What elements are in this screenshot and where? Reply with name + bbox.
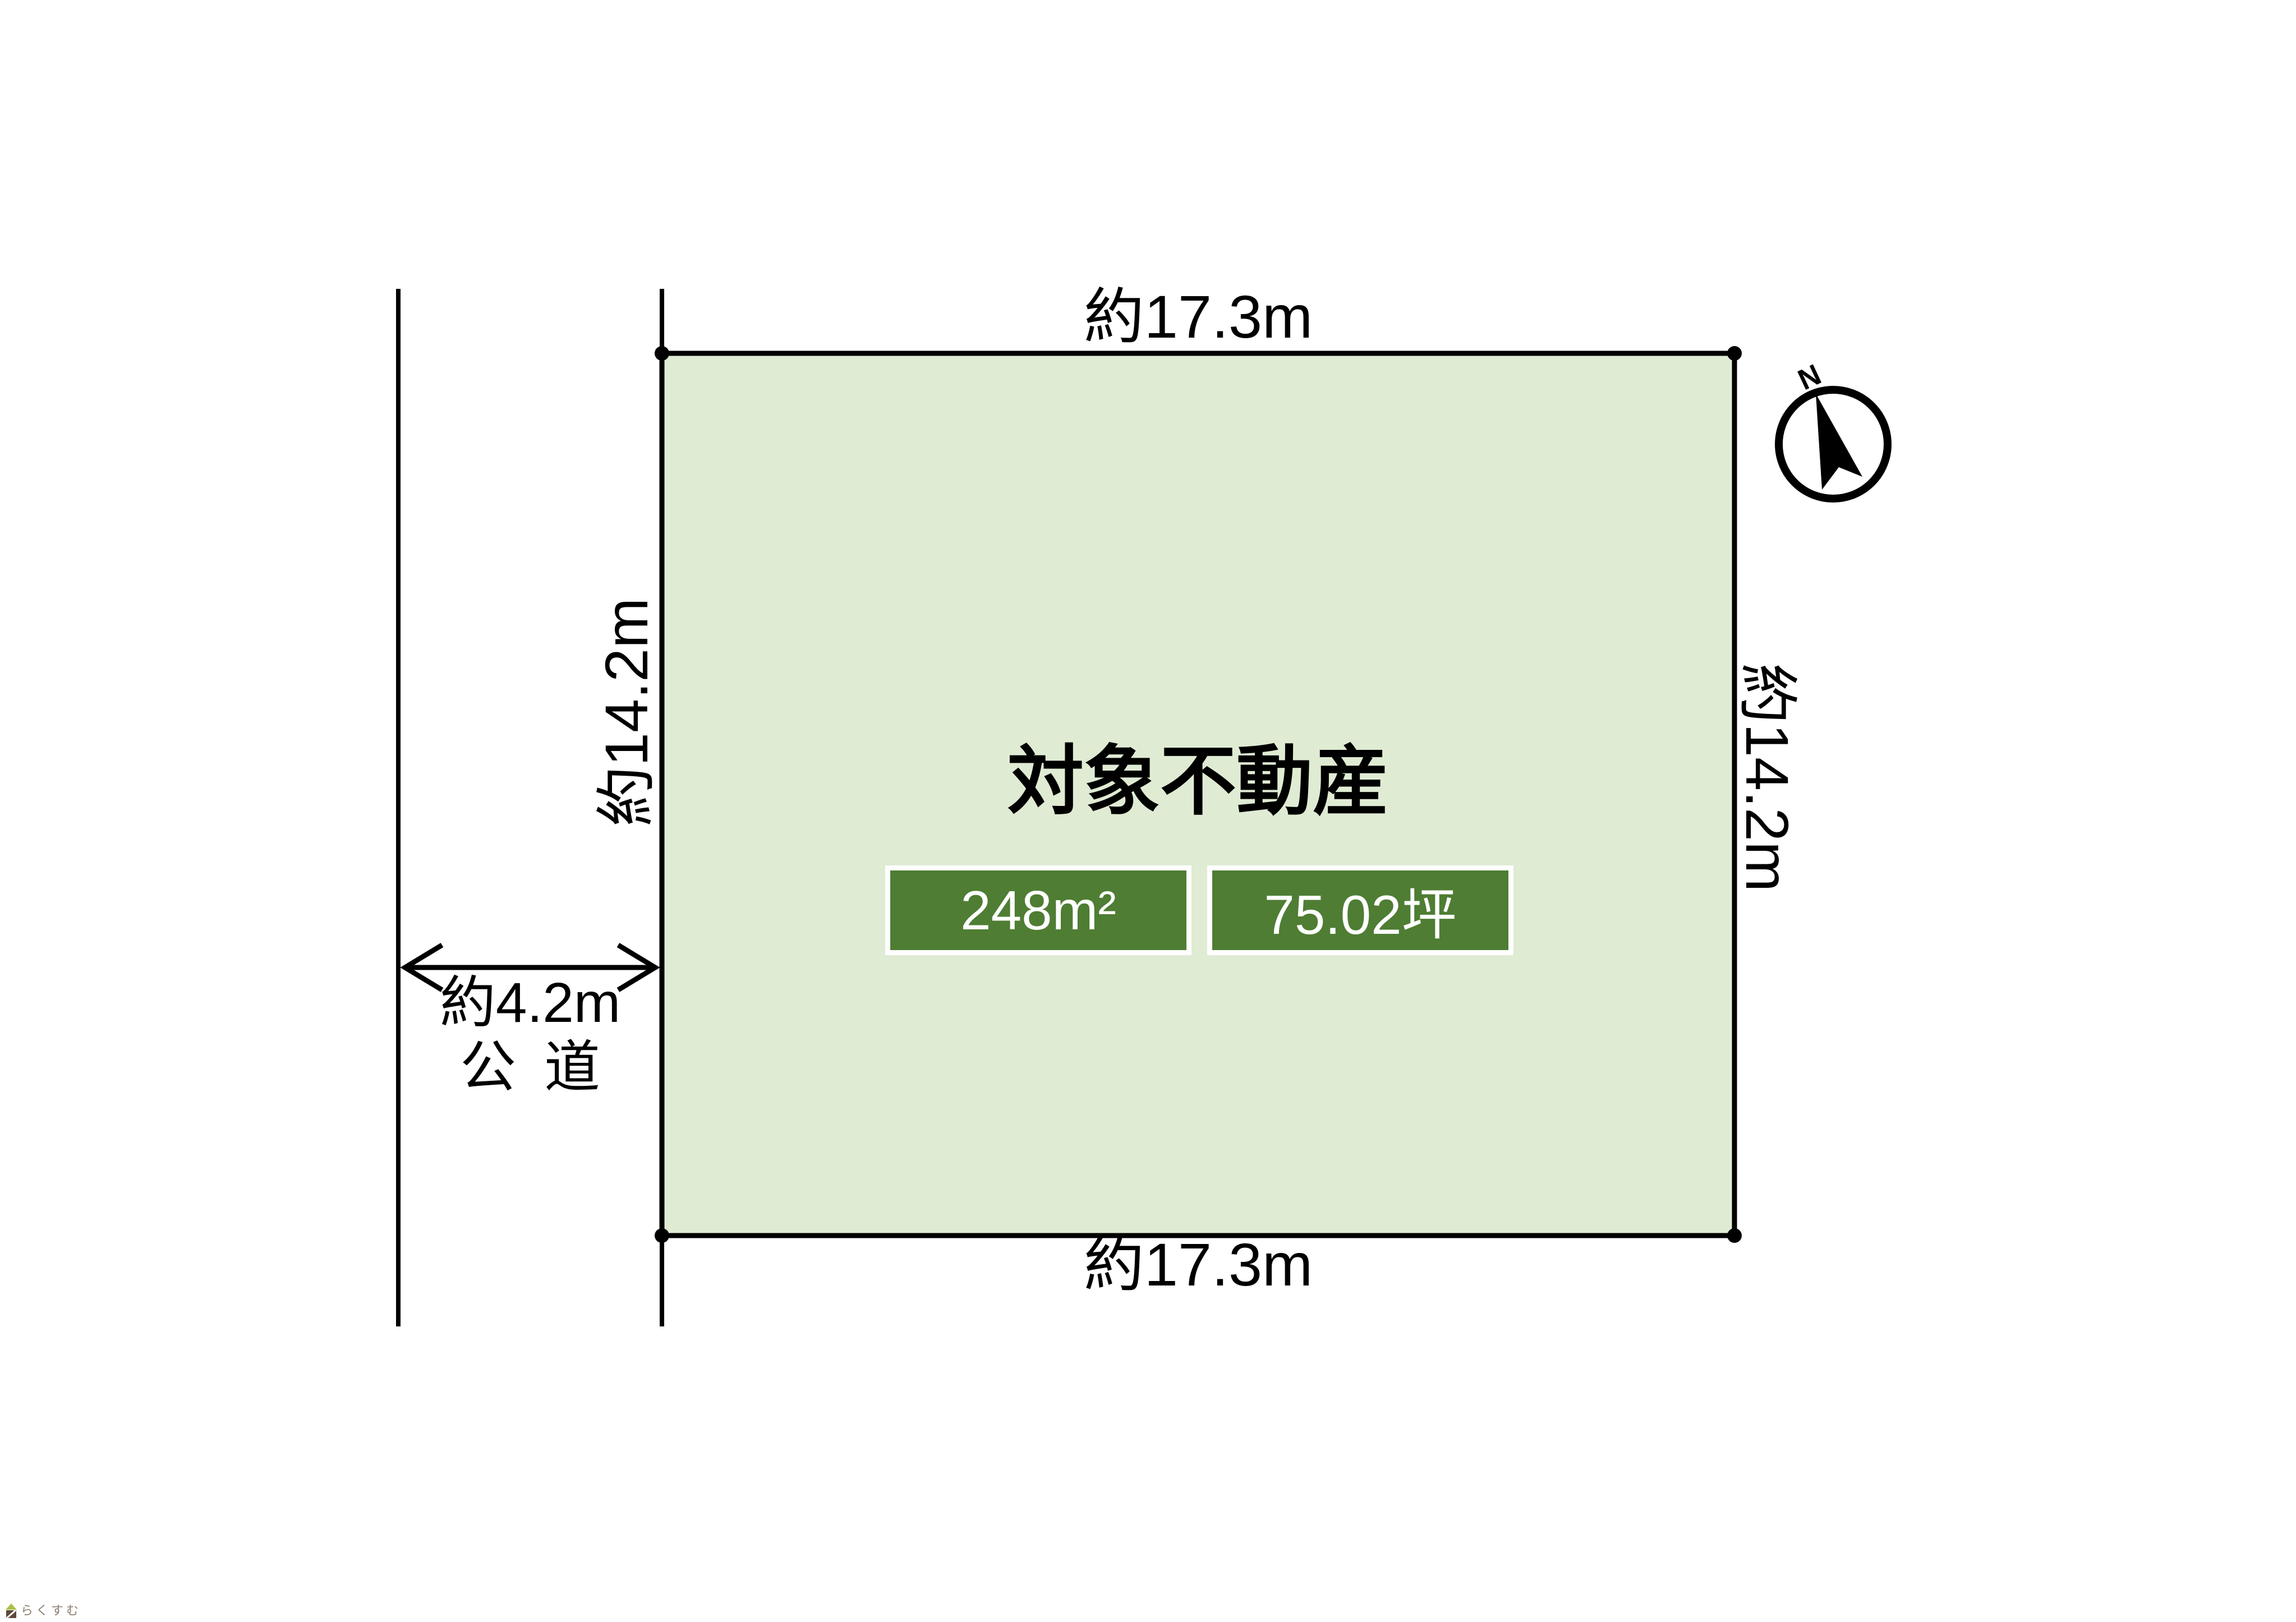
dimension-label-right: 約14.2m xyxy=(1733,637,1801,918)
area-tsubo-badge: 75.02坪 xyxy=(1207,865,1513,955)
area-badges: 248m² 75.02坪 xyxy=(885,865,1513,955)
dimension-label-left: 約14.2m xyxy=(593,572,660,853)
dimension-label-top: 約17.3m xyxy=(662,283,1734,351)
area-sqm-badge: 248m² xyxy=(885,865,1191,955)
logo-text: らくすむ xyxy=(21,1603,81,1619)
rakusumu-logo: らくすむ xyxy=(6,1603,81,1619)
road-width-label: 約4.2m xyxy=(390,972,670,1034)
plot-title: 対象不動産 xyxy=(662,739,1734,823)
road-type-label: 公 道 xyxy=(390,1036,670,1098)
dimension-label-bottom: 約17.3m xyxy=(662,1231,1734,1298)
house-icon xyxy=(6,1603,17,1619)
land-plot-diagram: 約17.3m 約17.3m 約14.2m 約14.2m 対象不動産 248m² … xyxy=(0,0,2296,1622)
